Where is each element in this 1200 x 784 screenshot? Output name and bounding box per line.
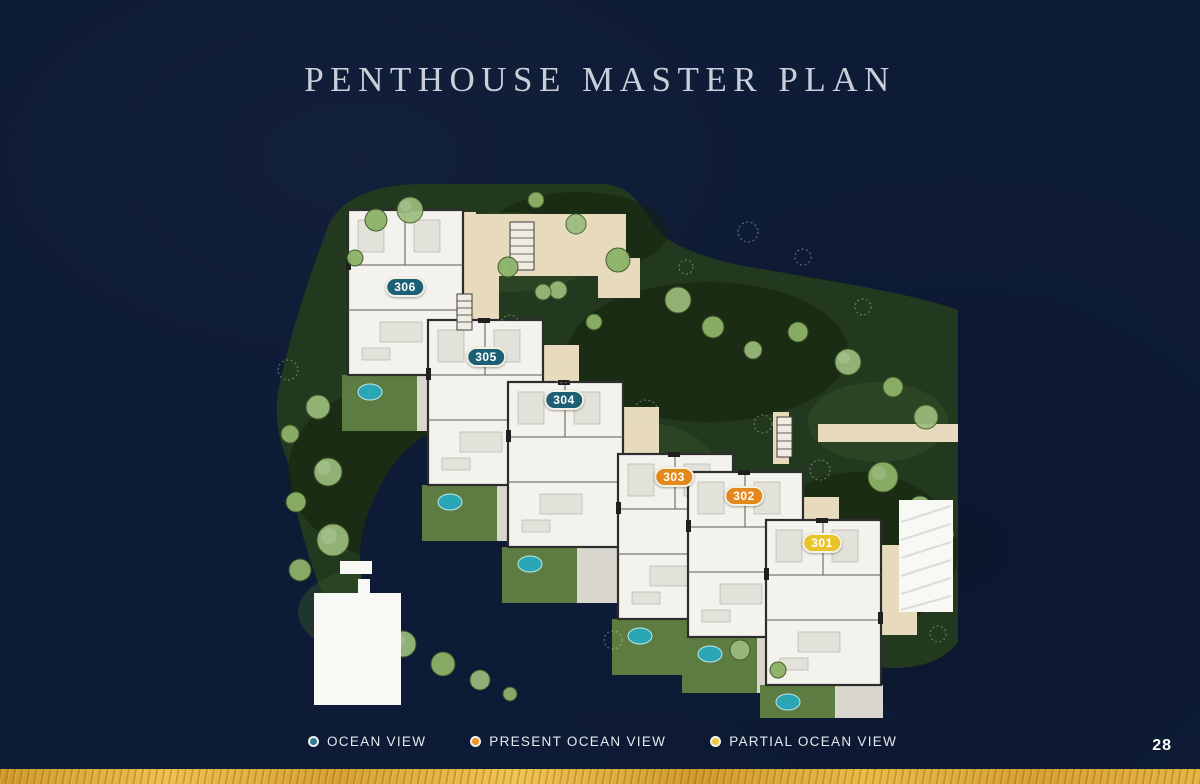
site-plan-graphic (258, 172, 968, 718)
present-ocean-view-dot-icon (470, 736, 481, 747)
legend-label: PARTIAL OCEAN VIEW (729, 734, 897, 749)
neighbor-building-right (899, 500, 953, 612)
legend-label: PRESENT OCEAN VIEW (489, 734, 666, 749)
gold-footer-bar (0, 769, 1200, 784)
unit-badge-305[interactable]: 305 (466, 347, 506, 367)
legend-label: OCEAN VIEW (327, 734, 426, 749)
legend: OCEAN VIEW PRESENT OCEAN VIEW PARTIAL OC… (308, 734, 897, 749)
legend-item-partial-ocean-view: PARTIAL OCEAN VIEW (710, 734, 897, 749)
unit-badge-301[interactable]: 301 (802, 533, 842, 553)
ocean-view-dot-icon (308, 736, 319, 747)
partial-ocean-view-dot-icon (710, 736, 721, 747)
legend-item-ocean-view: OCEAN VIEW (308, 734, 426, 749)
page-number: 28 (1152, 737, 1172, 755)
unit-badge-304[interactable]: 304 (544, 390, 584, 410)
brochure-page: PENTHOUSE MASTER PLAN (0, 0, 1200, 784)
legend-item-present-ocean-view: PRESENT OCEAN VIEW (470, 734, 666, 749)
page-title: PENTHOUSE MASTER PLAN (0, 60, 1200, 100)
unit-badge-303[interactable]: 303 (654, 467, 694, 487)
unit-badge-302[interactable]: 302 (724, 486, 764, 506)
unit-badge-306[interactable]: 306 (385, 277, 425, 297)
site-plan (258, 172, 968, 718)
